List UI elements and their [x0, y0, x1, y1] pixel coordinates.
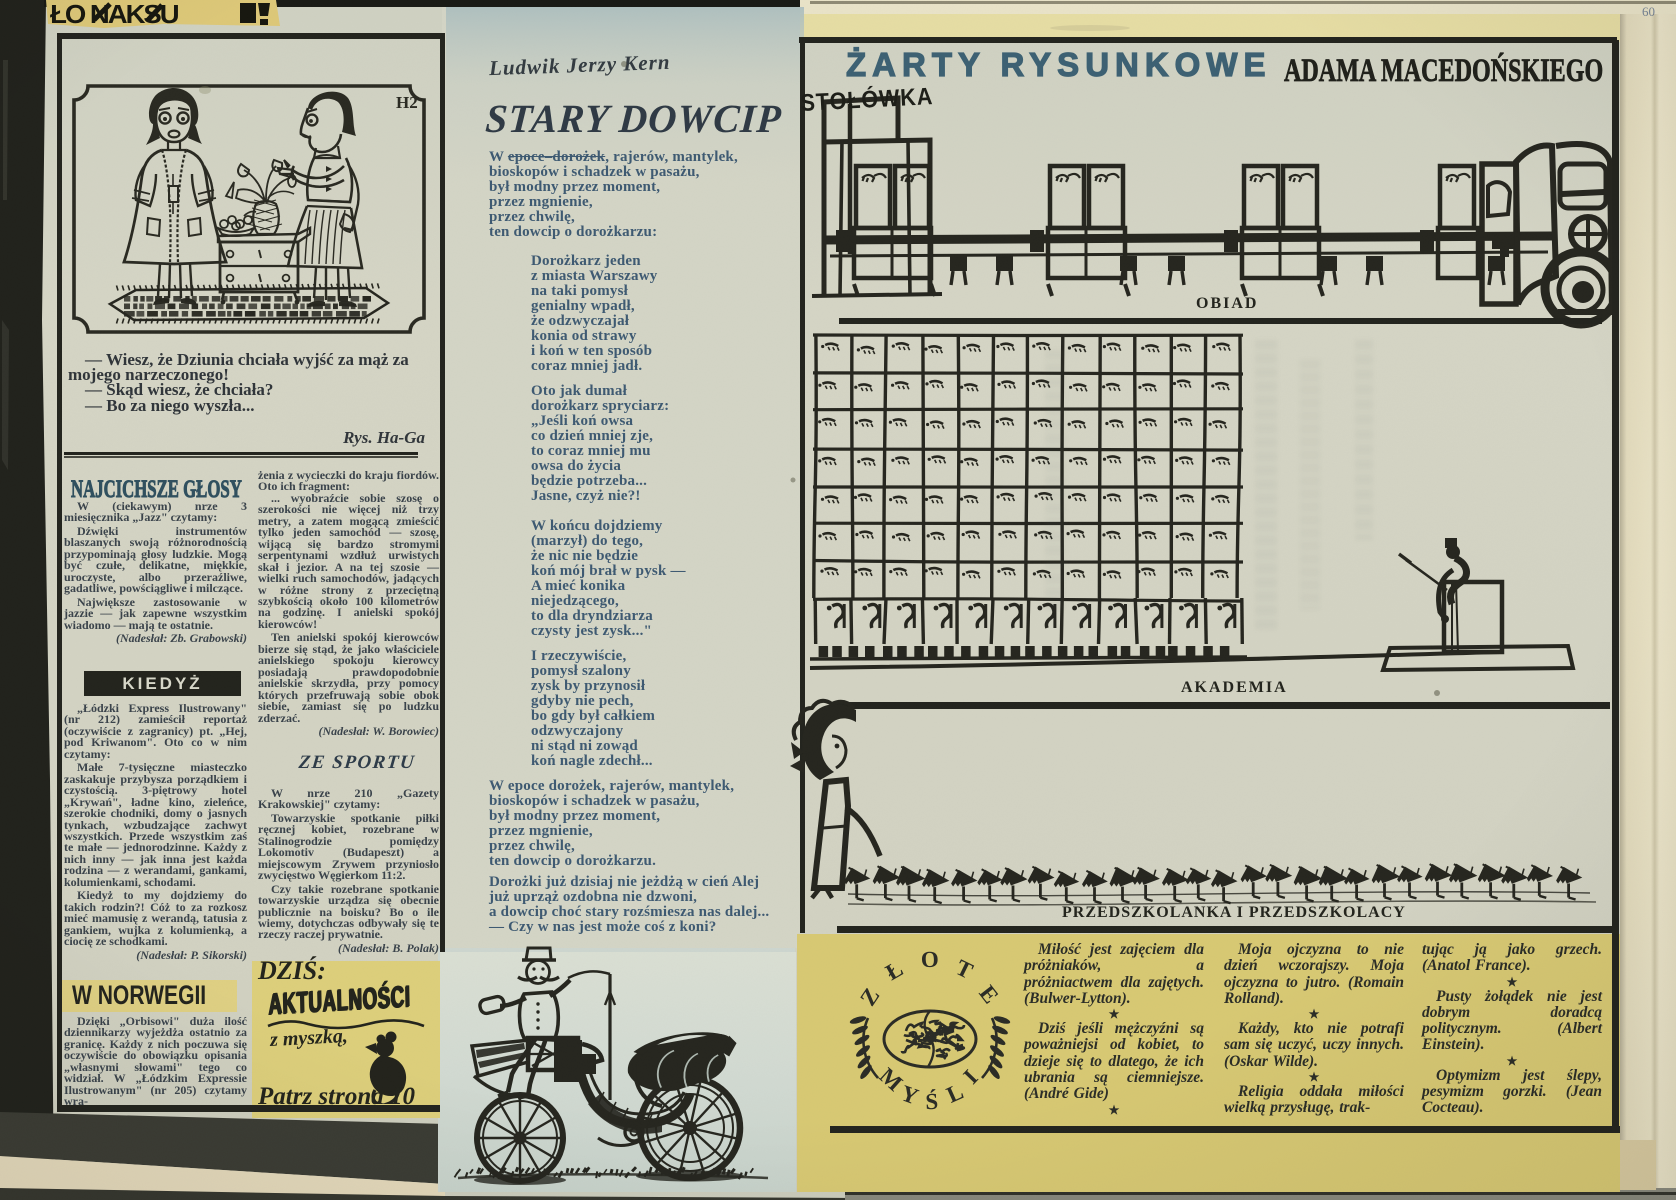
- svg-text:O: O: [920, 947, 939, 973]
- svg-text:Y: Y: [897, 1080, 922, 1109]
- svg-text:I: I: [959, 1065, 983, 1089]
- svg-text:H2: H2: [396, 93, 418, 112]
- svg-text:60: 60: [1642, 4, 1655, 19]
- svg-text:E: E: [974, 981, 1003, 1008]
- svg-text:Ł: Ł: [881, 956, 907, 985]
- svg-text:T: T: [952, 955, 977, 984]
- svg-text:L: L: [943, 1079, 967, 1108]
- svg-text:Z: Z: [855, 983, 884, 1010]
- svg-text:ŁO NAKSU: ŁO NAKSU: [50, 0, 178, 29]
- svg-text:Ś: Ś: [925, 1088, 939, 1114]
